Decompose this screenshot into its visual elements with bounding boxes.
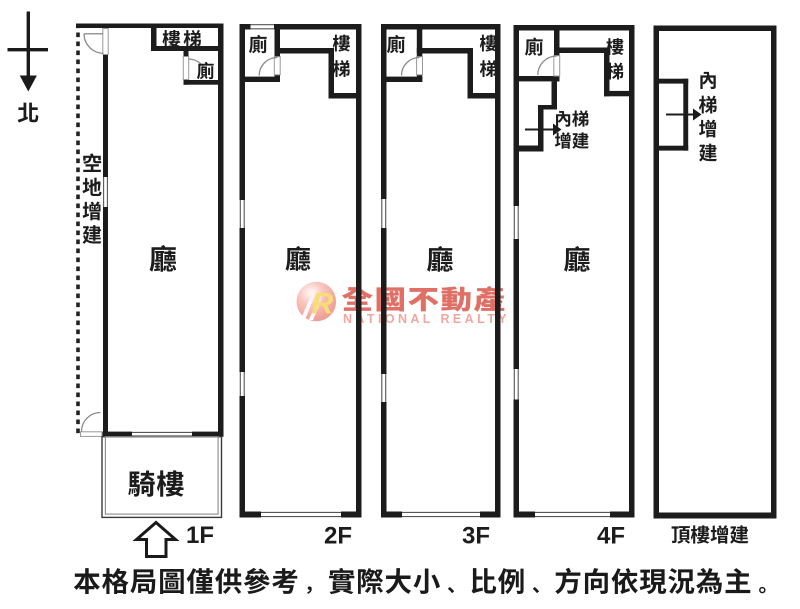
svg-text:NATIONAL REALTY: NATIONAL REALTY [343, 312, 510, 326]
svg-text:3F: 3F [462, 523, 490, 550]
svg-text:4F: 4F [597, 523, 625, 550]
svg-text:2F: 2F [324, 523, 352, 550]
svg-text:R: R [312, 288, 334, 321]
svg-text:1F: 1F [186, 522, 214, 549]
